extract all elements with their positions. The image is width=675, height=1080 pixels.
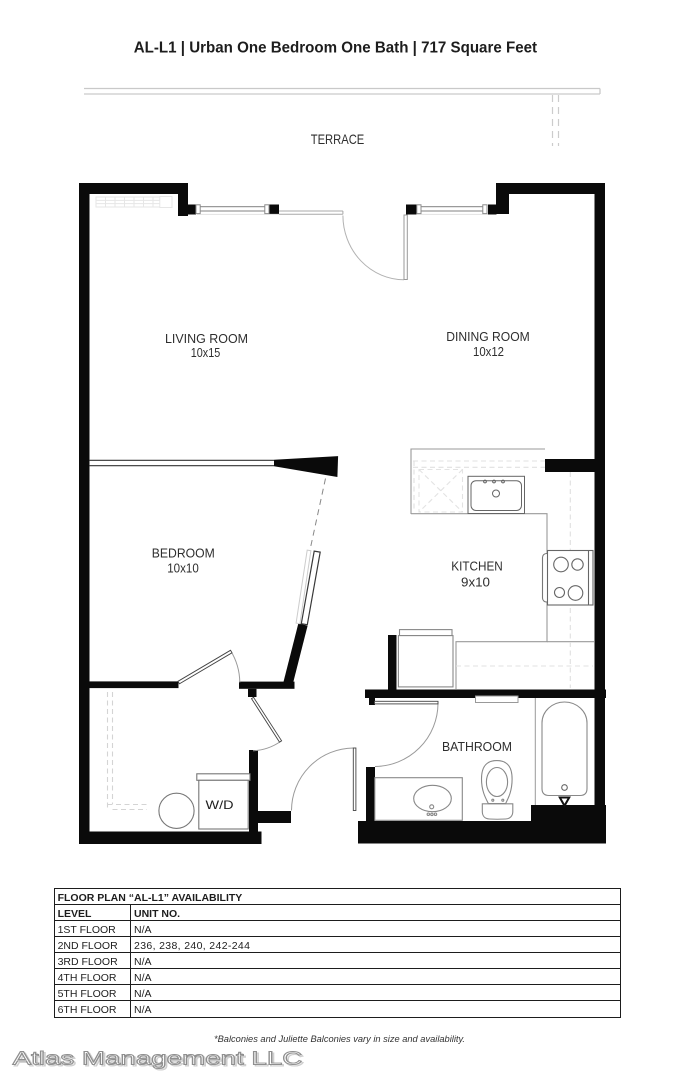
svg-text:KITCHEN: KITCHEN <box>451 558 503 573</box>
svg-text:BEDROOM: BEDROOM <box>152 545 215 560</box>
svg-text:*Balconies and Juliette Balcon: *Balconies and Juliette Balconies vary i… <box>214 1034 465 1045</box>
svg-text:W/D: W/D <box>206 798 234 812</box>
svg-text:Atlas Management LLC: Atlas Management LLC <box>13 1048 303 1069</box>
svg-text:10x10: 10x10 <box>167 561 199 576</box>
svg-text:DINING ROOM: DINING ROOM <box>446 329 530 344</box>
svg-text:10x12: 10x12 <box>473 344 504 359</box>
svg-text:BATHROOM: BATHROOM <box>442 739 512 754</box>
svg-text:9x10: 9x10 <box>461 574 490 589</box>
svg-text:LIVING ROOM: LIVING ROOM <box>165 331 248 346</box>
svg-text:10x15: 10x15 <box>191 345 221 360</box>
svg-text:AL-L1 | Urban One Bedroom One: AL-L1 | Urban One Bedroom One Bath | 717… <box>134 40 537 57</box>
svg-text:TERRACE: TERRACE <box>311 132 365 147</box>
